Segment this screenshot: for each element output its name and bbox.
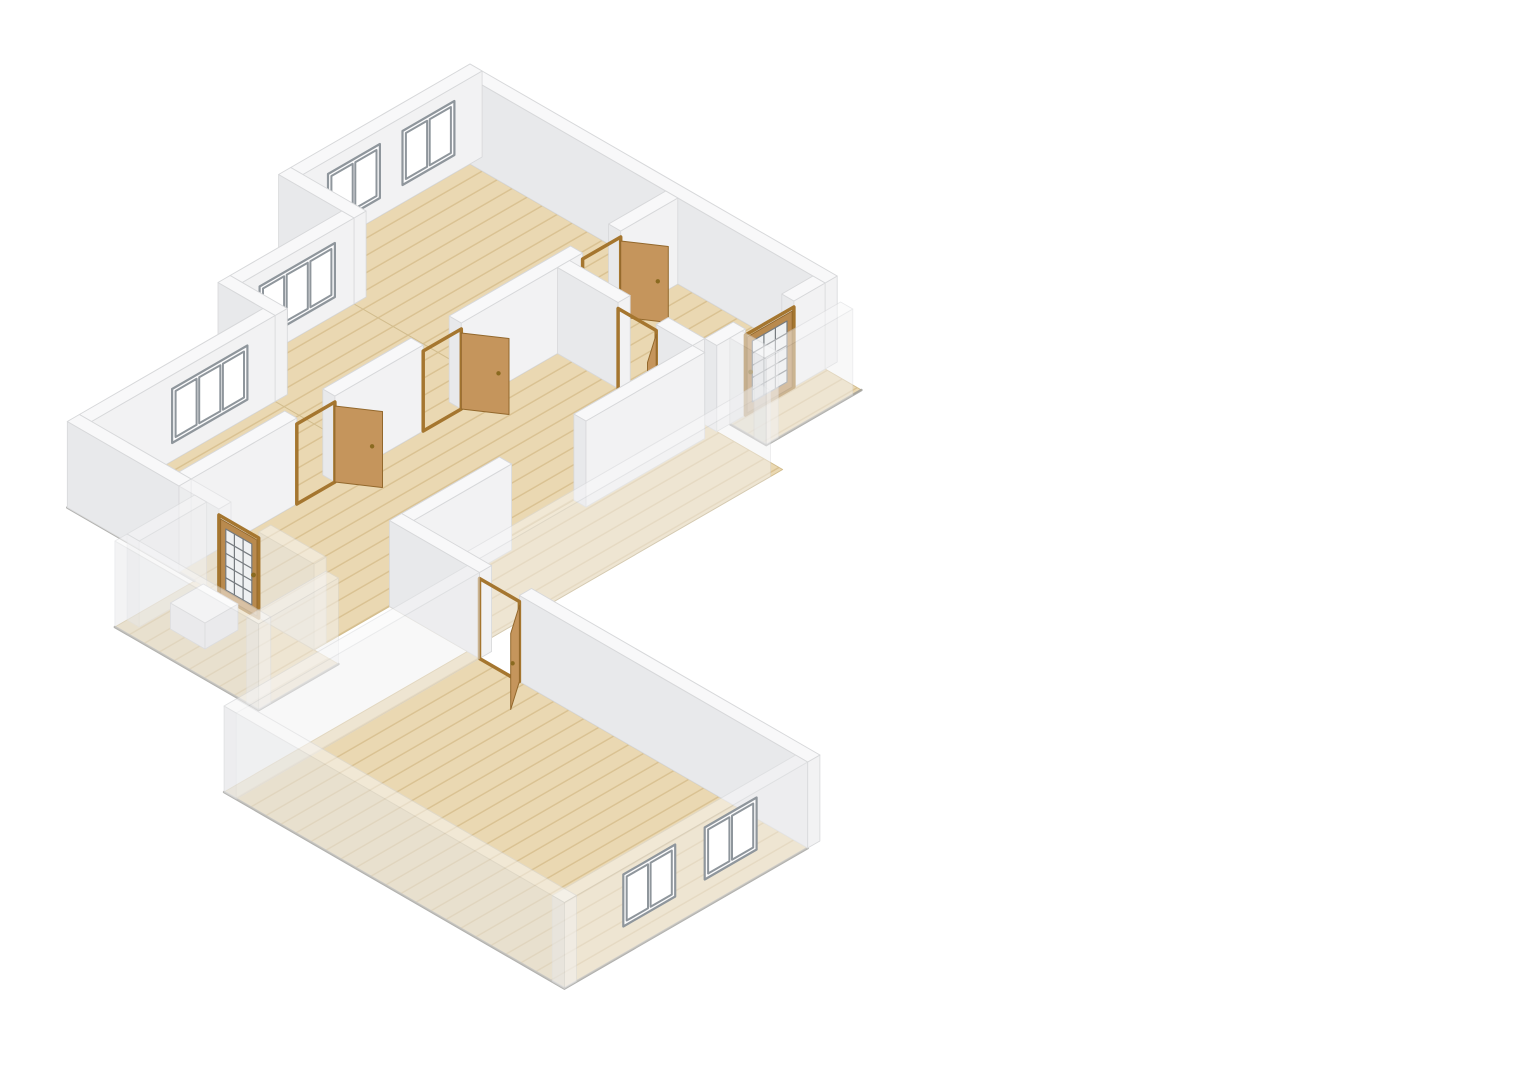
floorplan-viewport bbox=[0, 0, 1529, 1080]
floorplan-canvas bbox=[0, 0, 1529, 1080]
floorplan-scene bbox=[67, 64, 861, 989]
